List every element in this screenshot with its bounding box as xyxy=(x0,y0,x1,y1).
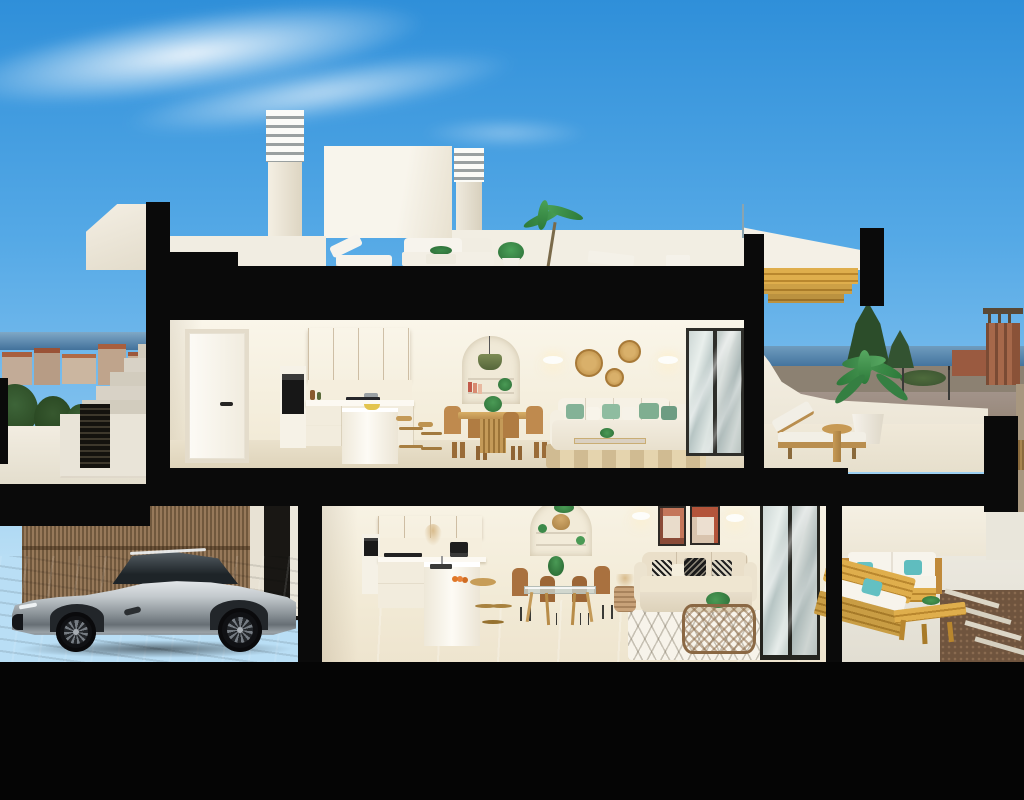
rattan-wall-plate xyxy=(618,340,641,363)
roof-palm-frond xyxy=(536,199,550,230)
pillow-green xyxy=(639,403,659,419)
ground-floor-room xyxy=(320,500,826,666)
pillow-patterned xyxy=(712,560,732,577)
wicker-coffee-table xyxy=(682,604,756,654)
dining-chair xyxy=(526,406,543,434)
fruit-bowl-oranges xyxy=(452,576,458,582)
side-table-column xyxy=(833,431,841,462)
bench-leg xyxy=(921,624,927,644)
sun-lounger-seat xyxy=(778,432,866,442)
niche-plant-tall xyxy=(548,556,564,576)
town-building xyxy=(34,348,60,385)
pergola-soffit xyxy=(768,294,844,303)
chimney-left-louvers xyxy=(266,110,304,162)
pendant-cord xyxy=(489,336,490,354)
faucet xyxy=(441,556,443,564)
niche-plant xyxy=(498,378,512,391)
pergola-soffit xyxy=(752,268,858,284)
basket xyxy=(614,586,636,612)
abstract-artwork xyxy=(690,505,720,545)
pampas-vase xyxy=(424,524,442,546)
wall-sconce xyxy=(726,514,744,522)
rattan-wall-plate xyxy=(605,368,624,387)
wood-stool xyxy=(470,578,496,586)
glass-reflection xyxy=(763,505,817,655)
rear-wheel-hub xyxy=(237,627,243,633)
car-cabin-glass xyxy=(106,552,238,584)
kitchen-island xyxy=(342,408,398,464)
sports-car xyxy=(12,548,298,660)
rattan-pendant xyxy=(552,514,570,530)
niche-books xyxy=(468,382,472,392)
town-building xyxy=(62,354,96,384)
pillow-green xyxy=(602,404,620,419)
chimney-right-louvers xyxy=(454,148,484,182)
dining-chair xyxy=(503,412,519,438)
pillow-green xyxy=(566,404,584,419)
niche-small-plant xyxy=(576,536,585,545)
cut-terrace-slab xyxy=(764,474,1018,506)
white-door xyxy=(189,333,245,459)
outdoor-sofa-arm xyxy=(935,558,942,594)
sofa-seat xyxy=(552,420,694,450)
niche-small-plant xyxy=(538,524,547,533)
stair-bulkhead xyxy=(86,204,146,270)
pillow-patterned xyxy=(652,560,672,577)
glass-railing xyxy=(742,204,744,238)
glass-coffee-table xyxy=(574,438,646,444)
sun-lounger-leg xyxy=(788,448,792,459)
pillow-cream xyxy=(622,407,637,420)
shrub-patch xyxy=(900,370,946,386)
upper-floor-room xyxy=(168,318,744,472)
cut-ground-band xyxy=(0,662,1024,800)
cut-mid-slab-left xyxy=(0,484,150,526)
terrace-floor-lower xyxy=(986,512,1024,560)
cut-left-wall-lower xyxy=(298,504,322,666)
cut-right-wall-lower xyxy=(826,504,842,666)
counter-bottle xyxy=(310,390,315,400)
door-handle xyxy=(220,402,233,406)
coffee-table-plant xyxy=(600,428,614,438)
pillow-dark xyxy=(684,558,706,576)
cross-section-render xyxy=(0,0,1024,800)
red-building xyxy=(952,350,986,376)
cut-left-wall-upper xyxy=(146,202,170,498)
dining-chair xyxy=(444,406,461,434)
louvered-gate xyxy=(80,404,110,468)
base-cabinets xyxy=(378,562,426,608)
kitchen-peninsula xyxy=(424,562,480,646)
cut-pergola-beam xyxy=(860,228,884,306)
street-lamp xyxy=(948,366,950,400)
roof-lounger-seat xyxy=(336,255,392,266)
rattan-wall-plate xyxy=(575,349,603,377)
coffee-machine xyxy=(450,542,468,557)
pillow-cream xyxy=(586,407,600,420)
planter-on-table xyxy=(922,596,940,605)
wood-stool xyxy=(418,422,433,427)
roof-parapet-right xyxy=(452,230,746,270)
counter-bottle xyxy=(317,392,321,400)
centerpiece-plant xyxy=(484,396,502,412)
pergola-soffit xyxy=(760,284,852,294)
abstract-artwork xyxy=(658,506,686,546)
upper-cabinets xyxy=(308,328,410,380)
wall-sconce xyxy=(658,356,678,364)
wall-sconce xyxy=(543,356,563,364)
sun-lounger-leg xyxy=(852,448,856,459)
front-wheel-hub xyxy=(73,629,79,635)
watchtower-body xyxy=(986,323,1020,385)
wall-sconce xyxy=(632,512,650,520)
roof-box xyxy=(324,146,452,238)
cut-roof-slab xyxy=(160,266,746,320)
niche-shelf xyxy=(468,392,514,394)
dining-chair-brown xyxy=(594,566,610,594)
pillow-turquoise xyxy=(904,560,922,575)
glass-reflection xyxy=(690,331,742,453)
watchtower-posts xyxy=(988,314,1018,323)
car-grille xyxy=(12,614,23,630)
cut-right-wall-upper xyxy=(744,234,764,474)
green-pendant-lamp xyxy=(478,354,502,370)
sink xyxy=(430,564,452,569)
oven xyxy=(282,374,304,414)
cloud xyxy=(420,118,590,148)
cut-mid-slab xyxy=(146,468,848,506)
oven xyxy=(364,538,378,556)
wood-stool xyxy=(396,416,412,421)
roof-table xyxy=(426,254,456,264)
pillow-cream xyxy=(661,406,677,420)
cut-edge-left xyxy=(0,378,8,464)
